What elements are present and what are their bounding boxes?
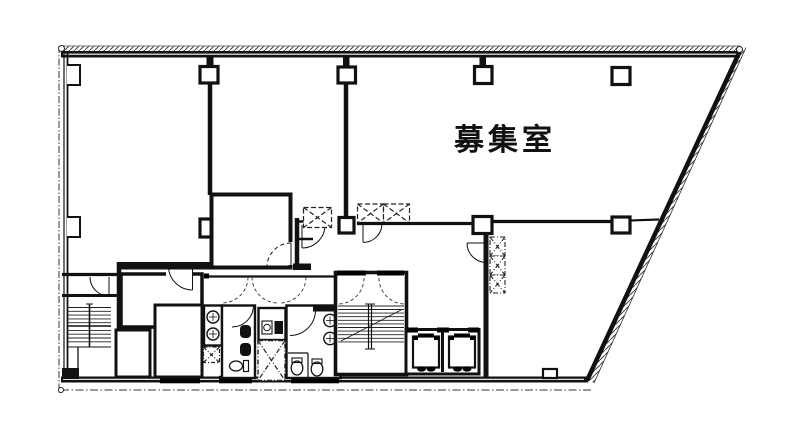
column: [473, 217, 492, 234]
left-pilaster-top: [67, 65, 80, 85]
toilet-core: [204, 306, 341, 381]
column: [475, 67, 493, 84]
door-arc: [90, 277, 109, 296]
slant-wall: [587, 52, 740, 381]
corner-marker-topright: [737, 47, 743, 53]
corner-marker-topleft: [59, 46, 65, 52]
room-2: [116, 330, 150, 377]
door-arc-dashed: [280, 277, 306, 303]
womens-toilet-room: [287, 306, 341, 379]
door-arc: [302, 225, 325, 248]
elevator-car: [413, 337, 439, 368]
left-pilaster-mid: [67, 217, 80, 237]
floor-plan: 募集室: [0, 0, 787, 439]
door-arc-dashed: [252, 277, 278, 303]
door-arc-dashed: [222, 277, 248, 303]
wall-band: [117, 262, 211, 270]
corner-block: [62, 368, 79, 379]
column: [612, 217, 630, 233]
column: [612, 68, 630, 85]
corner-marker-bottomleft: [59, 388, 64, 393]
elevators: [406, 328, 479, 375]
room-3: [155, 305, 202, 377]
fixture: [275, 321, 284, 334]
column: [339, 218, 354, 234]
inner-room: [212, 195, 291, 268]
column: [200, 67, 218, 84]
floor-plan-drawing: 募集室: [0, 0, 787, 439]
door-arc: [363, 224, 382, 243]
room-label: 募集室: [453, 123, 556, 157]
elevator-car: [449, 337, 475, 368]
urinal: [240, 343, 251, 356]
urinal: [240, 325, 251, 338]
door-arc: [467, 243, 486, 263]
small-rooms: [116, 267, 202, 378]
bottom-wall-notch: [543, 369, 557, 378]
stairs-center: [336, 271, 407, 375]
column: [338, 67, 356, 83]
